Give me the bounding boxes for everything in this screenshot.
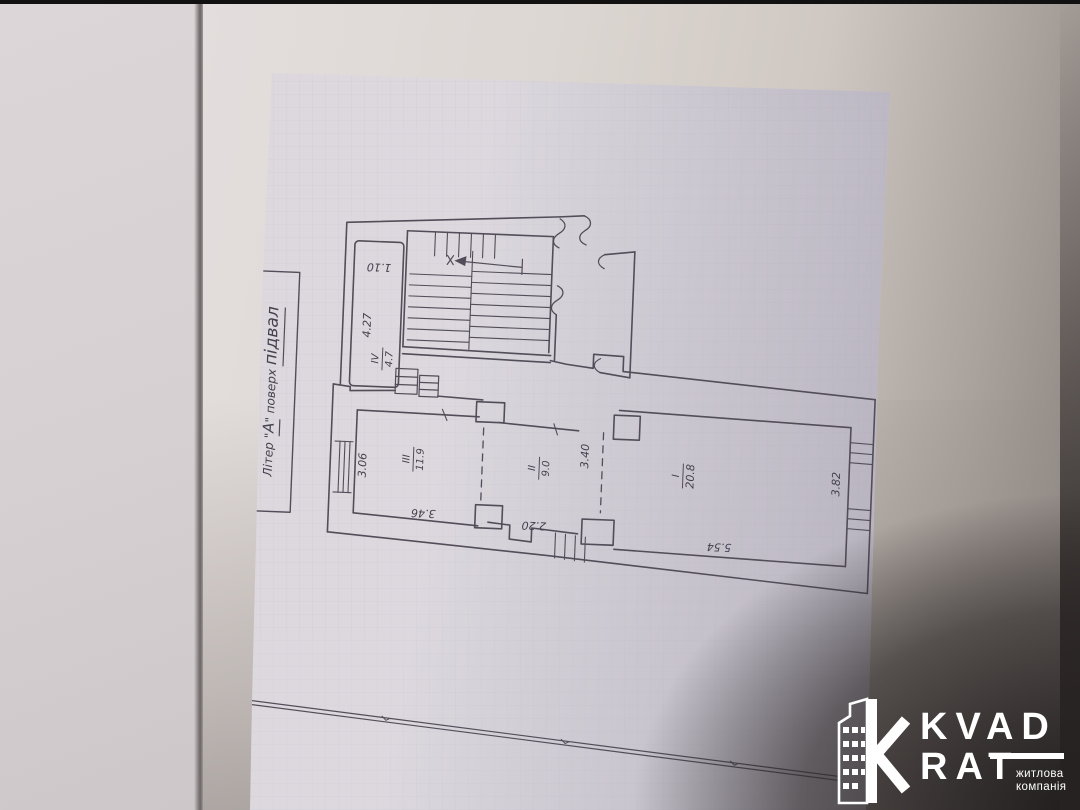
floorplan-drawing: Літер "А" поверх підвал [224,190,903,810]
stamp-floor-value: підвал [261,306,283,366]
kvadrat-watermark-logo: KVAD RAT житлова компанія [828,688,1080,810]
stair-flight-treads [407,249,553,353]
room-4-number: ІV [370,352,381,363]
room-4-area: 4.7 [384,350,396,367]
window-hatch-right [847,443,873,531]
logo-text-kvad: KVAD [920,708,1057,746]
room-4-labels: 1.10 4.27 ІV 4.7 [359,260,399,370]
room-1-area: 20.8 [683,464,697,489]
staircase-block: 1.10 4.27 ІV 4.7 [333,206,636,406]
logo-tagline-line2: компанія [1016,781,1066,794]
room-2-dim-length: 2.20 [521,519,546,533]
stamp-floor-label: " поверх [263,365,279,423]
room-3-dim-length: 3.46 [411,506,436,520]
room-4-dim-width: 1.10 [367,260,392,274]
logo-t-crossbar [990,753,1064,759]
door-symbols [395,368,439,397]
stair-winder-treads [435,232,496,258]
room-2-dim-width: 3.40 [578,444,592,469]
room-4-dim-length: 4.27 [360,313,374,338]
photo-top-black-bar [0,0,1080,4]
room-1-number: І [671,474,682,477]
rooms-block: 3.06 ІІІ 11.9 3.46 ІІ 9.0 3.40 2.20 І [326,344,877,594]
logo-tagline: житлова компанія [1016,768,1066,794]
photo-of-floorplan: { "stamp": { "segments": ["Літер \"", "А… [0,0,1080,810]
stamp-liter-label: Літер " [261,433,277,478]
room-2-area: 9.0 [541,460,553,476]
room-1-dim-width: 3.82 [829,472,843,497]
room-3-area: 11.9 [415,448,427,471]
background-wall-left [0,0,200,810]
window-hatch-left [333,441,353,493]
kvadrat-building-icon [836,696,912,806]
logo-tagline-line1: житлова [1016,768,1066,781]
stamp-liter-value: А [259,422,277,434]
entrance-wall-bracket [594,250,635,377]
room-2-number: ІІ [527,465,538,471]
room-1-dim-length: 5.54 [707,540,732,554]
sheet-frame-line [230,698,842,780]
room-3-number: ІІІ [401,454,412,463]
room-3-dim-width: 3.06 [356,453,370,478]
